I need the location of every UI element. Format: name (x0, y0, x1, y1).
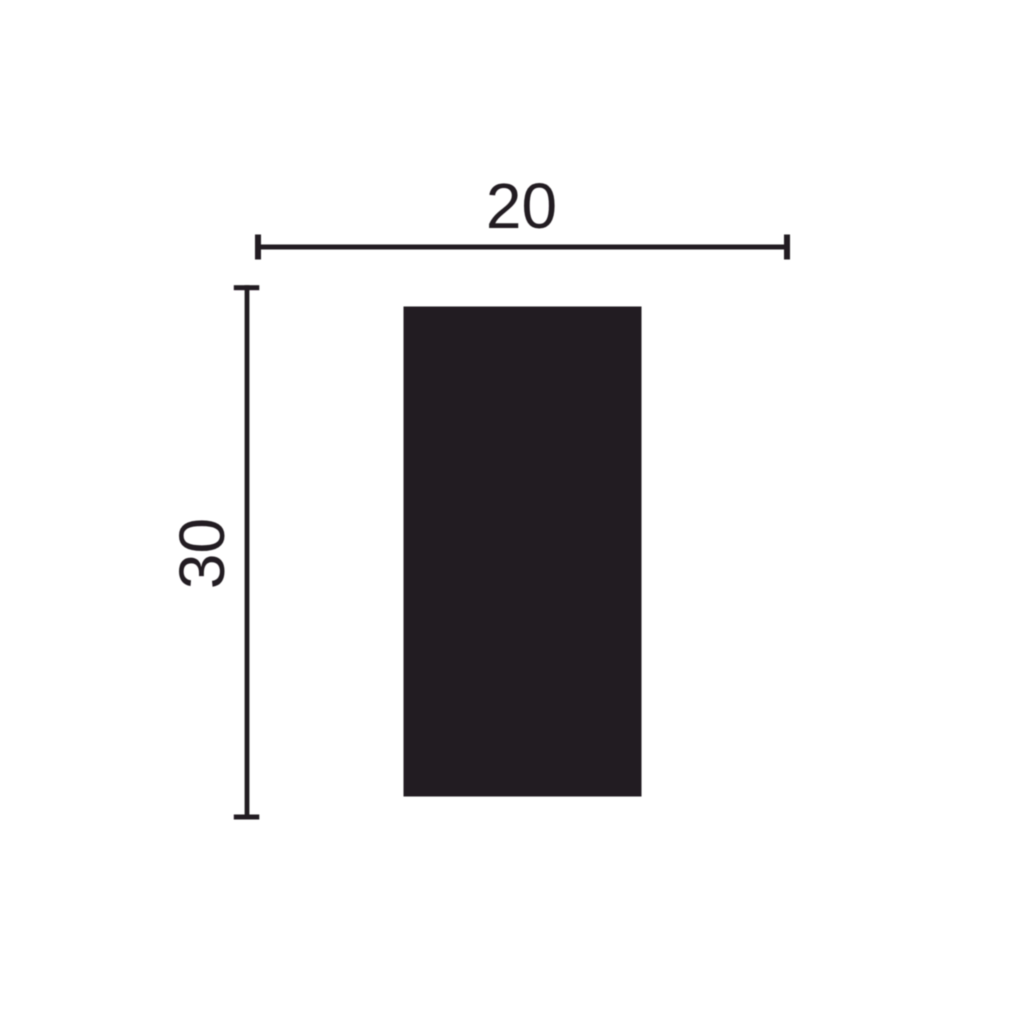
svg-text:30: 30 (166, 518, 238, 589)
svg-text:20: 20 (486, 170, 557, 242)
